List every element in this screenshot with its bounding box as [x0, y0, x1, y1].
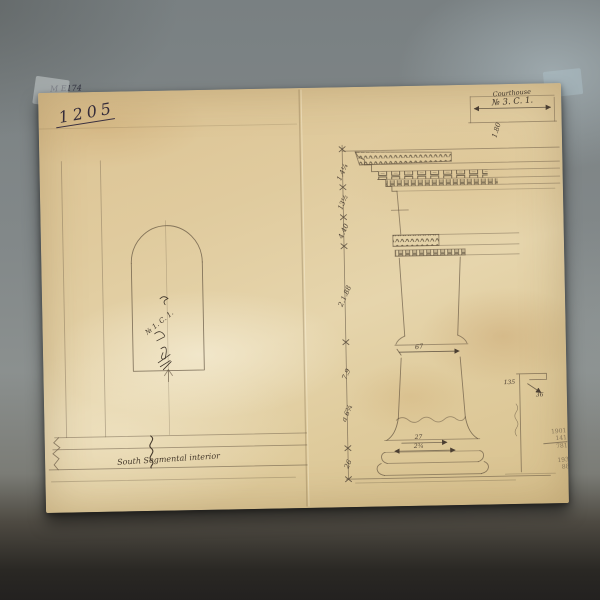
- fold-crease-vertical: [299, 90, 307, 506]
- niche-elevation-drawing: [61, 159, 205, 438]
- break-line: [53, 438, 61, 470]
- drawing-linework: [38, 83, 569, 513]
- fold-crease-highlight: [301, 90, 309, 506]
- photograph-of-drawing: M E174: [0, 0, 600, 600]
- column-shaft: [393, 257, 469, 423]
- pencil-calculation: 1901 141 781 193 88: [542, 427, 569, 472]
- entablature-profile: [342, 147, 561, 257]
- niche-scribble-2: [155, 332, 165, 341]
- column-base: [345, 415, 550, 483]
- base-dim-upper: 27: [415, 434, 423, 441]
- detail-dim-a: 135: [504, 379, 516, 386]
- base-dim-lower: 2¾: [414, 443, 424, 450]
- detail-dim-b: 36: [536, 391, 544, 398]
- niche-scribble-4: [158, 355, 171, 370]
- drawing-sheet: 1205 Courthouse № 3. C. 1. 1.80 1.4¼ 13½…: [38, 83, 569, 513]
- neck-width-label: 67: [414, 342, 423, 351]
- illegible-annotation: [515, 404, 519, 436]
- shaft-break-line: [396, 416, 465, 422]
